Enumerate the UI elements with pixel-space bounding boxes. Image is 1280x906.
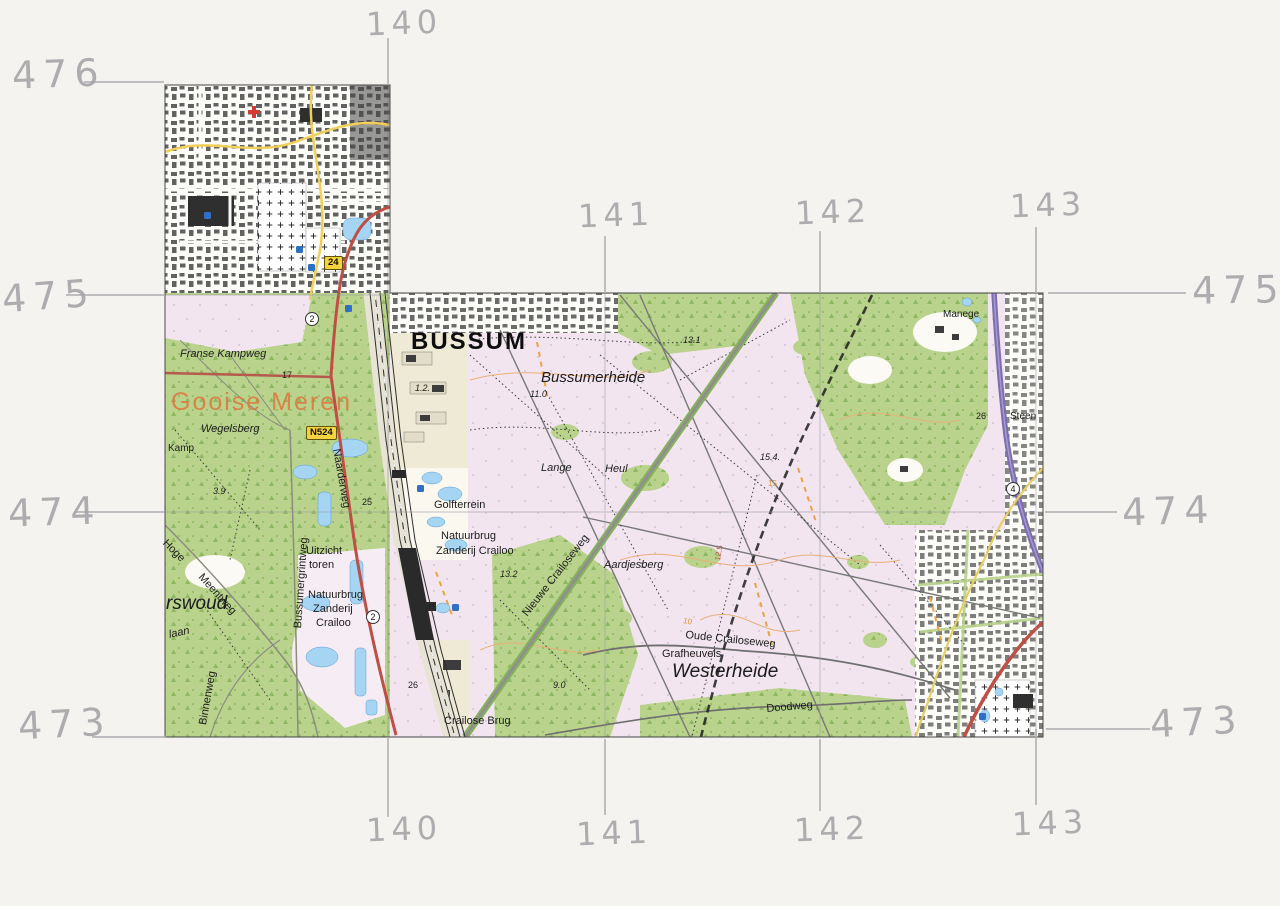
pencil-line-143-bottom [1035,729,1037,805]
map-label-toren: toren [309,560,334,571]
map-label-crailose-brug: Crailose Brug [444,716,511,727]
pencil-line-140-top [387,38,389,85]
grid-label-142-top: 142 [794,192,871,233]
map-label-natuurbrug-w2: Zanderij [313,604,353,615]
grid-label-143-top: 143 [1009,185,1086,226]
spot-height-3-9: 3.9 [213,487,226,496]
pencil-line-142-top [819,231,821,293]
pencil-line-141-bottom [604,739,606,815]
spot-height-13-1: 13.1 [683,336,701,345]
map-label-bussumerheide: Bussumerheide [541,370,645,385]
grid-label-475-left: 475 [1,271,97,321]
map-label-steen: Steen [1010,412,1036,422]
grid-label-475-right: 475 [1192,267,1280,313]
pencil-line-142-bottom [819,739,821,811]
pencil-line-473-right [1046,728,1150,730]
map-label-golfterrein: Golfterrein [434,500,485,511]
grid-label-476-left: 476 [11,50,106,97]
pencil-line-474-right [1045,511,1117,513]
pencil-line-143-top [1035,227,1037,293]
map-label-heul: Heul [605,464,628,475]
spot-height-9-0: 9.0 [553,681,566,690]
grid-label-140-top: 140 [365,3,442,44]
grid-label-142-bottom: 142 [793,809,870,850]
spot-height-13-2: 13.2 [500,570,518,579]
spot-height-1-2: 1.2. [415,384,430,393]
route-marker-4: 4 [1006,482,1020,496]
grid-label-141-top: 141 [577,195,654,236]
map-label-natuurbrug-e1: Natuurbrug [441,531,496,542]
route-marker-2: 2 [366,610,380,624]
grid-label-473-left: 473 [17,700,113,749]
pencil-line-475-right [1048,292,1186,294]
map-label-lange: Lange [541,463,572,474]
map-label-26-rail: 26 [408,681,418,690]
map-label-gooise-meren: Gooise Meren [171,390,352,415]
road-shield-24: 24 [324,256,343,270]
contour-label-15: 15 [768,480,777,488]
map-label-westerheide: Westerheide [672,662,778,681]
map-label-grafheuvels: Grafheuvels [662,649,721,660]
map-label-uitzicht: Uitzicht [306,546,342,557]
map-label-natuurbrug-w1: Natuurbrug [308,590,363,601]
map-label-kamp: Kamp [168,444,194,454]
grid-label-143-bottom: 143 [1011,803,1088,844]
map-label-25: 25 [362,498,372,507]
spot-height-11-0: 11.0 [530,390,547,399]
map-label-aardjesberg: Aardjesberg [604,560,663,571]
route-marker-2b: 2 [305,312,319,326]
map-label-natuurbrug-w3: Crailoo [316,618,351,629]
map-label-franse-kampweg: Franse Kampweg [180,349,266,360]
grid-label-474-left: 474 [7,488,102,535]
map-label-26-right: 26 [976,412,986,421]
pencil-line-141-top [604,236,606,293]
contour-label-10: 10 [682,617,692,627]
map-label-wegelsberg: Wegelsberg [201,424,260,435]
map-label-17: 17 [282,371,292,380]
grid-label-474-right: 474 [1121,487,1216,534]
grid-label-141-bottom: 141 [575,813,652,854]
spot-height-15-4: 15.4. [760,453,780,462]
map-label-manege: Manege [943,310,979,320]
pencil-line-140-bottom [387,737,389,817]
map-label-bussum: BUSSUM [411,330,527,354]
scanned-map-page: { "page": { "kind": "scanned topographic… [0,0,1280,906]
grid-label-473-right: 473 [1149,698,1245,747]
grid-label-140-bottom: 140 [365,809,442,850]
map-label-natuurbrug-e2: Zanderij Crailoo [436,546,514,557]
road-shield-n524: N524 [306,426,337,440]
